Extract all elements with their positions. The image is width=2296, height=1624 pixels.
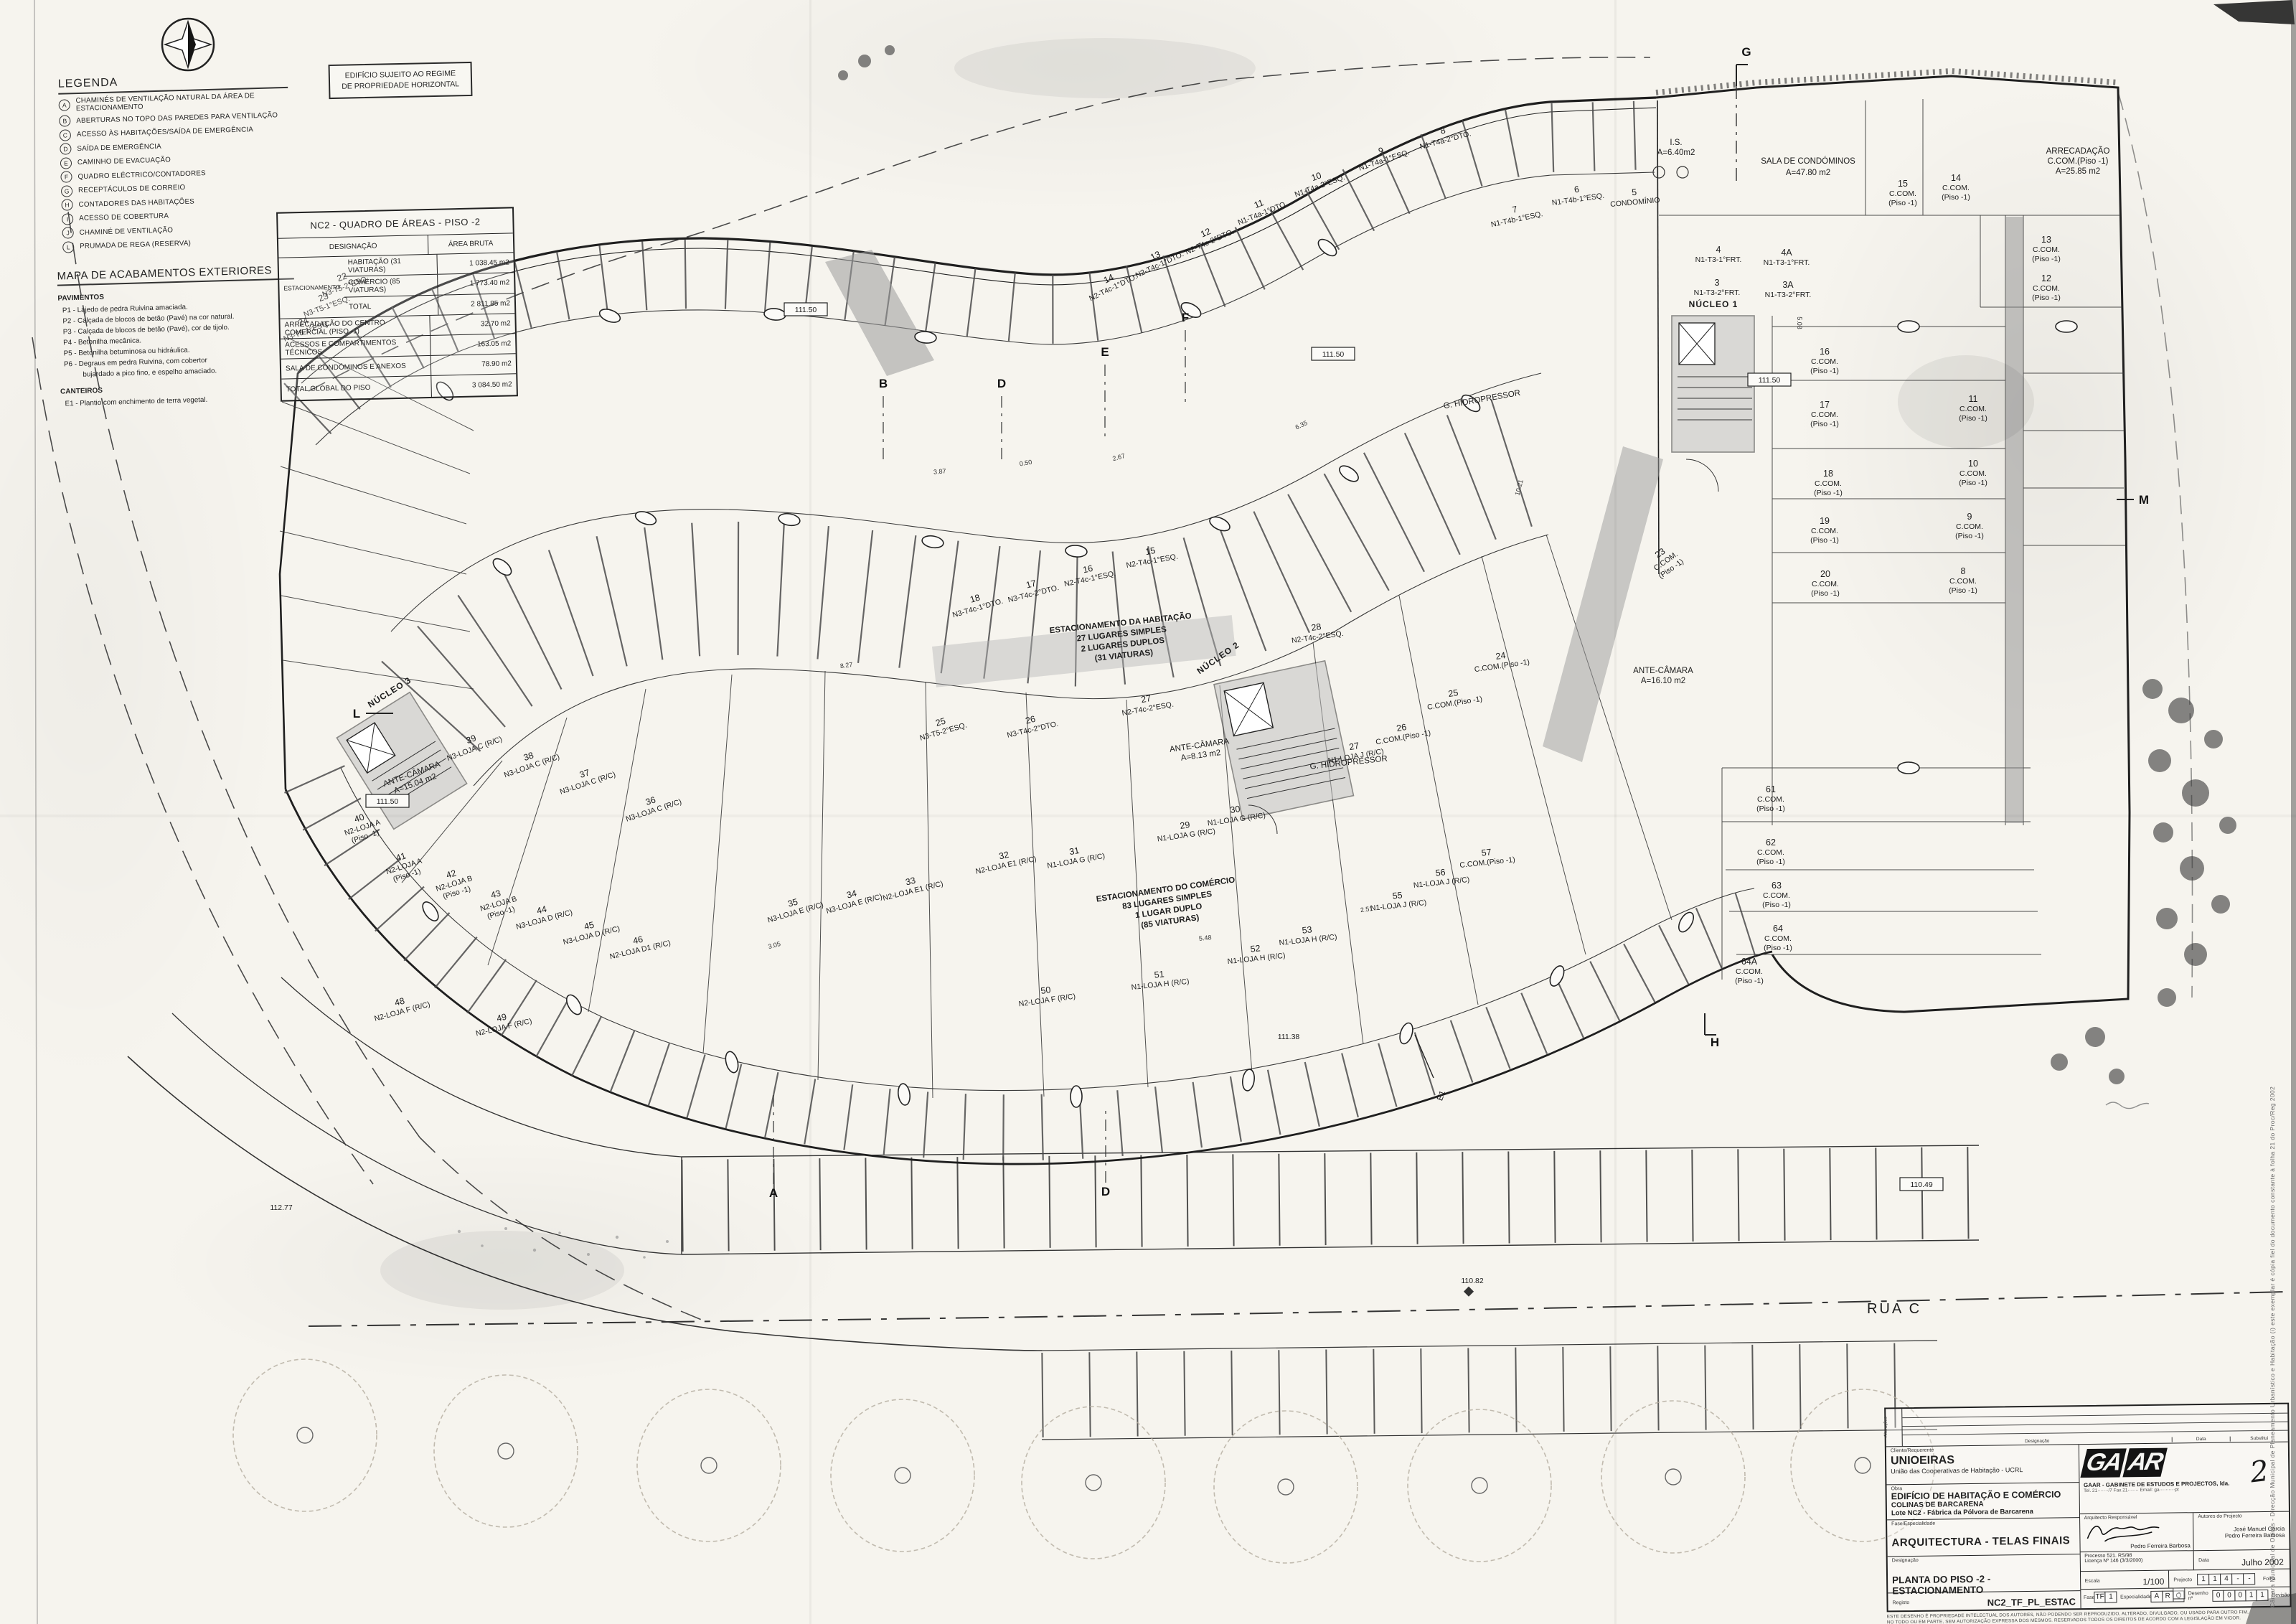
- svg-text:57: 57: [1481, 847, 1492, 858]
- legend: LEGENDA ACHAMINÉS DE VENTILAÇÃO NATURAL …: [58, 71, 307, 253]
- svg-text:(Piso -1): (Piso -1): [1764, 944, 1792, 952]
- svg-text:C.COM.(Piso -1): C.COM.(Piso -1): [2048, 157, 2109, 166]
- svg-text:C.COM.: C.COM.: [1811, 410, 1838, 419]
- storage-room-partitions: [1659, 99, 2125, 980]
- phase-value: ARQUITECTURA - TELAS FINAIS: [1891, 1534, 2075, 1549]
- areas-table: NC2 - QUADRO DE ÁREAS - PISO -2 DESIGNAÇ…: [276, 207, 518, 401]
- svg-text:A: A: [769, 1186, 778, 1200]
- svg-text:L: L: [353, 707, 360, 721]
- svg-text:4A: 4A: [1781, 248, 1792, 258]
- svg-text:10.21: 10.21: [1513, 479, 1524, 496]
- column-header: ÁREA BRUTA: [428, 233, 514, 254]
- svg-text:15: 15: [1144, 545, 1156, 557]
- svg-text:8.27: 8.27: [839, 661, 853, 670]
- svg-text:111.50: 111.50: [377, 797, 399, 806]
- svg-text:6.35: 6.35: [1294, 419, 1309, 431]
- svg-text:5: 5: [1632, 187, 1637, 198]
- svg-text:C.COM.(Piso -1): C.COM.(Piso -1): [1459, 855, 1515, 870]
- row-label: ACESSOS E COMPARTIMENTOS TÉCNICOS: [281, 336, 430, 359]
- exterior-finishes-map: MAPA DE ACABAMENTOS EXTERIORES PAVIMENTO…: [57, 263, 297, 408]
- svg-text:6: 6: [1573, 184, 1580, 195]
- svg-text:(Piso -1): (Piso -1): [1811, 589, 1840, 598]
- register-value: NC2_TF_PL_ESTAC: [1987, 1596, 2076, 1608]
- svg-text:C.COM.: C.COM.: [1812, 580, 1839, 588]
- svg-text:SALA DE CONDÓMINOS: SALA DE CONDÓMINOS: [1761, 156, 1855, 166]
- svg-text:27: 27: [1348, 741, 1360, 752]
- svg-text:64A: 64A: [1741, 957, 1758, 967]
- svg-text:8: 8: [1961, 566, 1966, 576]
- svg-text:7: 7: [1511, 205, 1518, 215]
- vegetation-patches: [838, 45, 2236, 1084]
- svg-text:62: 62: [1766, 837, 1776, 848]
- svg-text:C.COM.: C.COM.: [1764, 934, 1792, 943]
- svg-text:E1: E1: [1436, 1089, 1447, 1102]
- svg-text:(Piso -1): (Piso -1): [2032, 294, 2061, 302]
- svg-text:51: 51: [1154, 969, 1165, 980]
- svg-text:19: 19: [1820, 516, 1830, 526]
- svg-text:N1-T3-1°FRT.: N1-T3-1°FRT.: [1764, 258, 1810, 267]
- svg-text:16: 16: [1820, 347, 1830, 357]
- svg-text:12: 12: [2041, 273, 2051, 283]
- svg-text:3: 3: [1715, 278, 1720, 288]
- svg-text:(Piso -1): (Piso -1): [1955, 532, 1984, 540]
- svg-text:63: 63: [1772, 881, 1782, 891]
- paper-fold: [1614, 0, 1617, 1624]
- svg-text:H: H: [1711, 1036, 1719, 1049]
- phase-cell: Fase/Especialidade ARQUITECTURA - TELAS …: [1887, 1517, 2079, 1556]
- svg-text:F: F: [1182, 311, 1189, 324]
- svg-text:18: 18: [1823, 469, 1833, 479]
- svg-text:C.COM.: C.COM.: [1959, 469, 1987, 478]
- title-block: Alterações Designação Data Substitui Cli…: [1884, 1403, 2292, 1624]
- svg-text:A=6.40m2: A=6.40m2: [1657, 149, 1695, 157]
- revision-table: Alterações Designação Data Substitui: [1886, 1404, 2288, 1447]
- svg-text:13: 13: [2041, 235, 2051, 245]
- svg-text:C.COM.: C.COM.: [1811, 527, 1838, 535]
- svg-text:C.COM.: C.COM.: [2033, 284, 2060, 293]
- row-value: 2 811.85 m2: [438, 294, 515, 315]
- client-cell: Cliente/Requerente UNIOEIRAS União das C…: [1886, 1445, 2079, 1484]
- row-label: TOTAL GLOBAL DO PISO: [281, 376, 431, 400]
- sheet-number: 2: [2248, 1455, 2270, 1490]
- svg-text:C.COM.: C.COM.: [1757, 848, 1784, 857]
- client-subtitle: União das Cooperativas de Habitação - UC…: [1891, 1465, 2074, 1475]
- svg-text:112.77: 112.77: [270, 1203, 292, 1212]
- svg-text:110.82: 110.82: [1461, 1277, 1483, 1285]
- svg-text:(Piso -1): (Piso -1): [1810, 420, 1839, 428]
- row-label: HABITAÇÃO (31 VIATURAS): [343, 255, 437, 276]
- svg-text:G. HIDROPRESSOR: G. HIDROPRESSOR: [1443, 389, 1521, 411]
- svg-text:56: 56: [1435, 867, 1446, 878]
- row-value: 1 773.40 m2: [437, 273, 514, 295]
- scale-value: 1/100: [2142, 1577, 2164, 1587]
- svg-text:4: 4: [1716, 245, 1721, 255]
- north-arrow-icon: [162, 19, 214, 70]
- svg-text:(Piso -1): (Piso -1): [1762, 901, 1791, 909]
- svg-text:(Piso -1): (Piso -1): [1810, 367, 1839, 375]
- row-label: TOTAL: [344, 295, 438, 316]
- svg-text:A=25.85 m2: A=25.85 m2: [2056, 167, 2100, 176]
- street-label: RUA C: [1867, 1301, 1921, 1317]
- column-header: DESIGNAÇÃO: [278, 235, 428, 258]
- svg-text:26: 26: [1396, 722, 1407, 733]
- svg-text:(Piso -1): (Piso -1): [1959, 479, 1987, 487]
- finishes-section: CANTEIROS: [60, 381, 297, 395]
- svg-text:14: 14: [1951, 173, 1961, 183]
- svg-text:111.50: 111.50: [1322, 350, 1345, 359]
- firm-logo: GA: [2080, 1448, 2126, 1478]
- svg-text:(Piso -1): (Piso -1): [1814, 489, 1843, 497]
- svg-text:N1-T3-2°FRT.: N1-T3-2°FRT.: [1694, 288, 1741, 297]
- architect-cell: Arquitecto Responsável Pedro Ferreira Ba…: [2080, 1513, 2194, 1552]
- svg-text:53: 53: [1302, 924, 1312, 935]
- svg-text:C.COM.: C.COM.: [1757, 795, 1784, 804]
- svg-text:C.COM.: C.COM.: [1889, 189, 1916, 198]
- svg-text:(Piso -1): (Piso -1): [1888, 199, 1917, 207]
- svg-text:C.COM.: C.COM.: [1811, 357, 1838, 366]
- paper-fold: [809, 0, 811, 1624]
- row-label: ARRECADAÇÃO DO CENTRO COMERCIAL (PISO -1…: [280, 316, 430, 339]
- group-cell: ESTACIONAMENTO: [278, 257, 344, 319]
- svg-text:110.49: 110.49: [1910, 1181, 1932, 1189]
- svg-text:B: B: [879, 377, 888, 390]
- svg-text:M: M: [2139, 493, 2149, 507]
- row-value: 3 084.50 m2: [430, 374, 517, 397]
- svg-text:2.67: 2.67: [1111, 452, 1126, 462]
- finishes-section: PAVIMENTOS: [57, 288, 294, 302]
- zone-text-comercio: ESTACIONAMENTO DO COMÉRCIO 83 LUGARES SI…: [1096, 876, 1240, 937]
- svg-text:D: D: [1101, 1185, 1110, 1198]
- architect-name: Pedro Ferreira Barbosa: [2130, 1542, 2191, 1549]
- svg-text:ARRECADAÇÃO: ARRECADAÇÃO: [2046, 146, 2110, 156]
- svg-text:25: 25: [1447, 687, 1459, 699]
- svg-text:29: 29: [1180, 820, 1191, 831]
- row-value: 32.70 m2: [429, 314, 515, 335]
- row-value: 78.90 m2: [430, 354, 517, 375]
- surface-parking-strips: [682, 1145, 1979, 1440]
- process-cell: Processo 521. RS/98 Licença Nº 146 (3/3/…: [2080, 1551, 2194, 1571]
- svg-text:61: 61: [1766, 784, 1776, 794]
- svg-text:111.50: 111.50: [795, 306, 817, 314]
- project-cell: Obra EDIFÍCIO DE HABITAÇÃO E COMÉRCIO CO…: [1886, 1482, 2079, 1519]
- svg-text:(Piso -1): (Piso -1): [2032, 255, 2061, 263]
- svg-text:C.COM.: C.COM.: [2033, 245, 2060, 254]
- svg-text:27: 27: [1140, 693, 1152, 705]
- svg-text:28: 28: [1311, 621, 1322, 633]
- svg-text:0.50: 0.50: [1019, 459, 1032, 468]
- row-value: 1 038.45 m2: [436, 253, 514, 274]
- dimension-texts: 2.67 3.87 0.50 6.35 8.27 5.48 2.51 3.05 …: [767, 316, 1803, 950]
- row-value: 163.05 m2: [430, 334, 516, 355]
- register-cell: Registo NC2_TF_PL_ESTAC: [1888, 1590, 2080, 1610]
- svg-text:C.COM.: C.COM.: [1763, 891, 1790, 900]
- svg-text:52: 52: [1250, 943, 1261, 954]
- row-label: SALA DE CONDÓMINOS E ANEXOS: [281, 356, 431, 379]
- svg-text:C.COM.: C.COM.: [1949, 577, 1977, 586]
- svg-text:16: 16: [1082, 563, 1094, 576]
- tree-symbols: [233, 1359, 1934, 1563]
- svg-text:C.COM.: C.COM.: [1736, 967, 1763, 976]
- svg-text:3A: 3A: [1782, 280, 1794, 290]
- svg-text:30: 30: [1230, 804, 1241, 815]
- svg-text:(Piso -1): (Piso -1): [1810, 536, 1839, 545]
- svg-text:17: 17: [1820, 400, 1830, 410]
- signature: [2083, 1519, 2163, 1544]
- svg-text:D: D: [997, 377, 1006, 390]
- scale-cell: Escala 1/100: [2080, 1571, 2169, 1590]
- svg-text:(Piso -1): (Piso -1): [1949, 586, 1977, 595]
- svg-text:A=47.80 m2: A=47.80 m2: [1786, 169, 1830, 177]
- svg-text:111.50: 111.50: [1759, 376, 1781, 385]
- svg-text:9: 9: [1967, 512, 1972, 522]
- svg-text:5.08: 5.08: [1796, 316, 1803, 329]
- svg-text:N1-T3-2°FRT.: N1-T3-2°FRT.: [1765, 291, 1812, 299]
- svg-text:5.48: 5.48: [1198, 934, 1211, 942]
- municipal-stamp-text: Câmara Municipal de Oeiras - Direcção Mu…: [2269, 782, 2276, 1607]
- date-value: Julho 2002: [2241, 1557, 2284, 1568]
- svg-text:E: E: [1101, 345, 1109, 359]
- svg-text:(Piso -1): (Piso -1): [1735, 977, 1764, 985]
- svg-text:32: 32: [998, 850, 1010, 862]
- svg-text:111.38: 111.38: [1278, 1033, 1300, 1041]
- parking-aisle-arcs: [316, 172, 1754, 1090]
- svg-text:3.87: 3.87: [933, 467, 946, 475]
- svg-text:55: 55: [1392, 890, 1403, 901]
- firm-logo: AR: [2122, 1448, 2168, 1478]
- svg-text:N1-T3-1°FRT.: N1-T3-1°FRT.: [1695, 255, 1742, 264]
- sheet-edges: [34, 0, 37, 1624]
- svg-text:C.COM.: C.COM.: [1942, 184, 1970, 192]
- parking-stall-dividers: [307, 135, 1764, 1127]
- property-regime-notice: EDIFÍCIO SUJEITO AO REGIME DE PROPRIEDAD…: [329, 62, 473, 99]
- svg-text:G: G: [1741, 45, 1751, 59]
- svg-text:50: 50: [1040, 985, 1052, 996]
- row-label: COMÉRCIO (85 VIATURAS): [344, 275, 438, 296]
- svg-text:C.COM.: C.COM.: [1815, 479, 1842, 488]
- svg-text:(Piso -1): (Piso -1): [1942, 193, 1970, 202]
- svg-text:20: 20: [1820, 569, 1830, 579]
- paper-fold-horizontal: [0, 815, 2296, 817]
- scanned-floor-plan-sheet: G B D E F A D H L M RUA C ESTACIONAME: [0, 0, 2296, 1624]
- svg-text:24: 24: [1495, 650, 1507, 662]
- svg-text:3.05: 3.05: [767, 940, 781, 950]
- svg-text:(Piso -1): (Piso -1): [1756, 858, 1785, 866]
- svg-text:I.S.: I.S.: [1670, 139, 1682, 147]
- firm-cell: GA AR 2 GAAR - GABINETE DE ESTUDOS E PRO…: [2079, 1442, 2289, 1514]
- svg-text:ANTE-CÂMARA: ANTE-CÂMARA: [1633, 666, 1693, 675]
- svg-text:64: 64: [1773, 924, 1783, 934]
- svg-text:31: 31: [1068, 845, 1080, 857]
- svg-text:NÚCLEO 1: NÚCLEO 1: [1689, 299, 1739, 309]
- svg-text:15: 15: [1898, 179, 1908, 189]
- svg-text:(Piso -1): (Piso -1): [1756, 804, 1785, 813]
- svg-text:A=16.10 m2: A=16.10 m2: [1641, 677, 1685, 685]
- svg-text:C.COM.: C.COM.: [1956, 522, 1983, 531]
- svg-text:10: 10: [1968, 459, 1978, 469]
- designation-cell: Designação PLANTA DO PISO -2 - ESTACIONA…: [1888, 1554, 2080, 1592]
